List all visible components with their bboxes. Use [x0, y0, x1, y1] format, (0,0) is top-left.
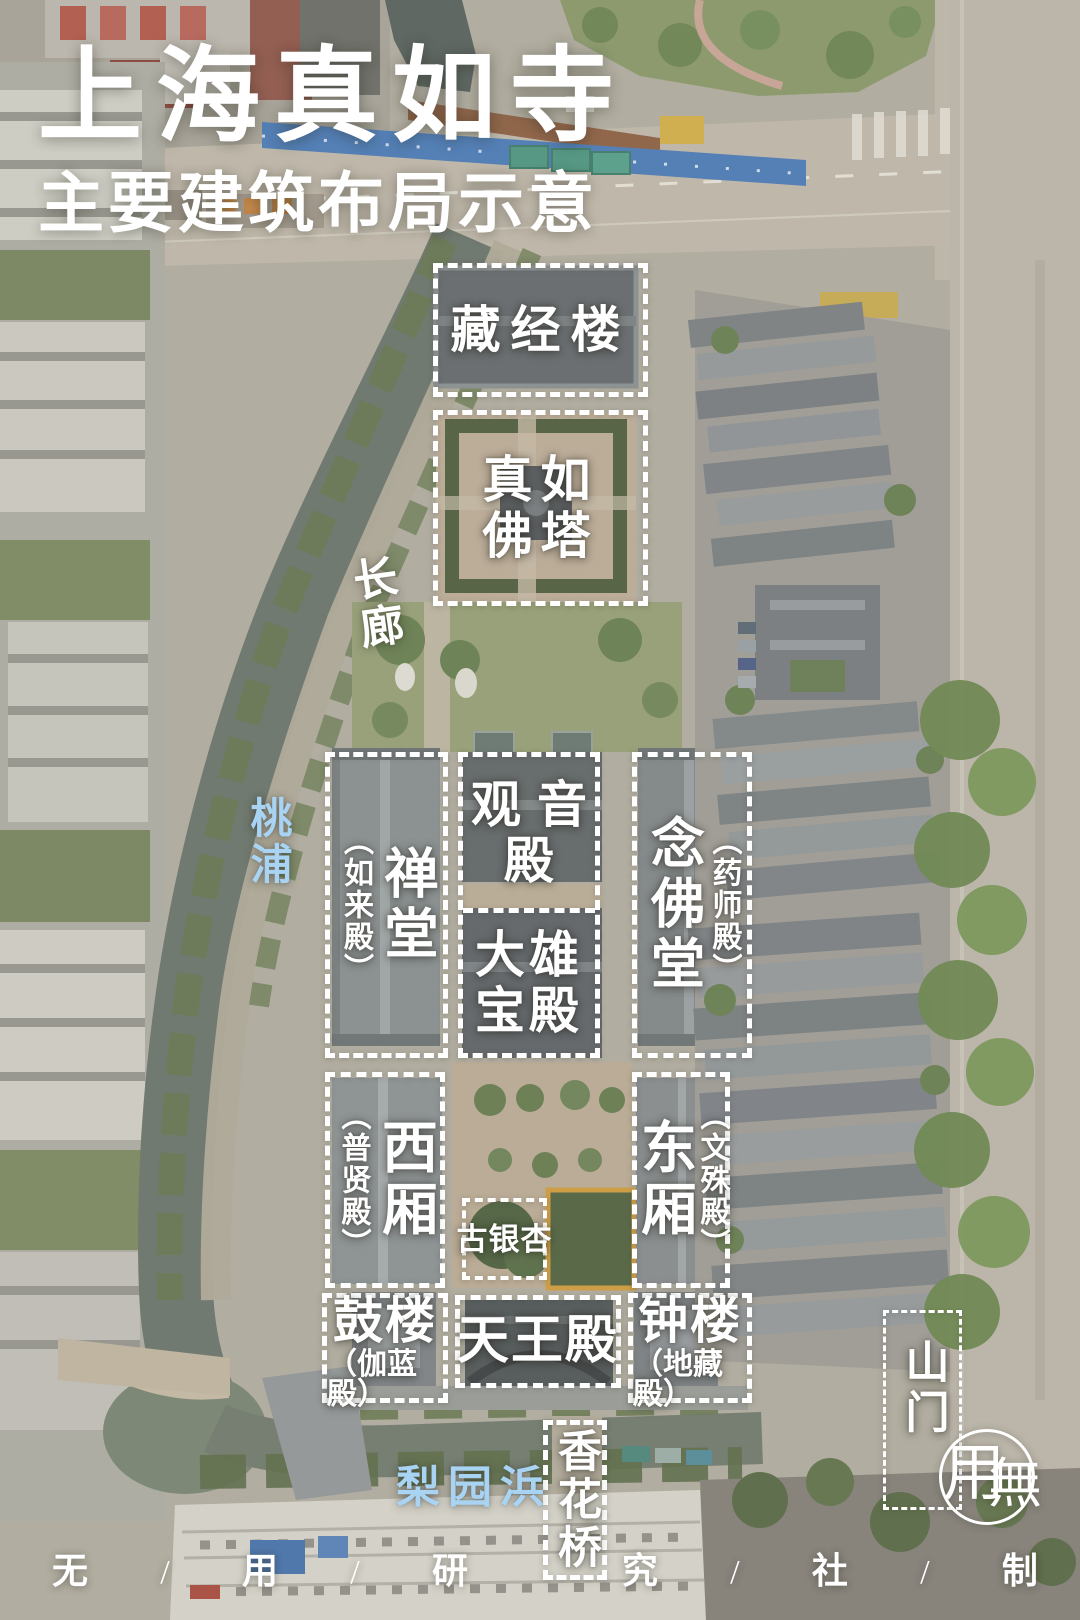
box-west-wing: （普贤殿） 西厢	[325, 1072, 445, 1288]
box-tianwang-hall: 天王殿	[455, 1295, 621, 1388]
studio-seal-logo: 用 無	[939, 1429, 1035, 1525]
poster-subtitle: 主要建筑布局示意	[38, 172, 598, 238]
box-bell-tower: 钟楼 （地藏殿）	[628, 1293, 752, 1403]
bell-tower-label: 钟楼	[638, 1296, 742, 1346]
box-nianfo-hall: 念佛堂 （药师殿）	[632, 752, 752, 1058]
drum-tower-label: 鼓楼	[333, 1296, 437, 1346]
mountain-gate-label: 山门	[901, 1339, 945, 1439]
taopu-river-label: 桃浦	[246, 796, 288, 888]
east-wing-alt-label: （文殊殿）	[697, 1100, 727, 1260]
chan-hall-alt-label: （如来殿）	[340, 825, 370, 985]
guanyin-hall-label: 观音 殿	[471, 777, 587, 889]
credit-char: 社	[812, 1542, 848, 1594]
east-wing-label: 东厢	[636, 1118, 692, 1242]
west-wing-alt-label: （普贤殿）	[338, 1100, 368, 1260]
poster-title: 上海真如寺	[38, 46, 628, 150]
guanyin-hall-cell: 观音 殿	[463, 757, 595, 908]
tianwang-hall-label: 天王殿	[457, 1316, 619, 1368]
box-sutra-library: 藏经楼	[433, 263, 648, 397]
mahavira-hall-cell: 大雄 宝殿	[463, 908, 595, 1053]
mahavira-hall-label: 大雄 宝殿	[475, 927, 583, 1039]
ginkgo-label: 古银杏	[457, 1224, 553, 1255]
poster-canvas: 上海真如寺 主要建筑布局示意 藏经楼 真如 佛塔 （如来殿） 禅堂 观音 殿 大…	[0, 0, 1080, 1620]
credit-char: 用	[242, 1542, 278, 1594]
nianfo-hall-labels: 念佛堂 （药师殿）	[646, 815, 739, 995]
credit-char: 无	[52, 1542, 88, 1594]
sutra-library-label: 藏经楼	[451, 305, 631, 355]
chan-hall-label: 禅堂	[379, 845, 433, 965]
west-wing-labels: （普贤殿） 西厢	[338, 1100, 433, 1260]
credit-slash: /	[350, 1554, 359, 1592]
drum-tower-alt-label: （伽蓝殿）	[327, 1350, 443, 1410]
box-pagoda: 真如 佛塔	[433, 410, 648, 606]
credit-row: 无 / 用 / 研 / 究 / 社 / 制	[52, 1542, 1038, 1594]
box-drum-tower: 鼓楼 （伽蓝殿）	[322, 1293, 448, 1403]
west-wing-label: 西厢	[377, 1118, 433, 1242]
chan-hall-labels: （如来殿） 禅堂	[340, 825, 433, 985]
box-ginkgo: 古银杏	[462, 1198, 547, 1280]
bell-tower-alt-label: （地藏殿）	[633, 1350, 747, 1410]
credit-char: 制	[1002, 1542, 1038, 1594]
credit-slash: /	[920, 1554, 929, 1592]
nianfo-hall-alt-label: （药师殿）	[709, 825, 739, 985]
corridor-label: 长廊	[346, 553, 403, 654]
box-chan-hall: （如来殿） 禅堂	[325, 752, 448, 1058]
credit-slash: /	[160, 1554, 169, 1592]
credit-slash: /	[730, 1554, 739, 1592]
pagoda-label: 真如 佛塔	[483, 452, 599, 564]
box-east-wing: 东厢 （文殊殿）	[632, 1072, 730, 1288]
logo-char-right: 無	[988, 1457, 1042, 1511]
liyuan-creek-label: 梨园浜	[396, 1466, 552, 1510]
box-central-halls: 观音 殿 大雄 宝殿	[458, 752, 600, 1058]
credit-char: 究	[622, 1542, 658, 1594]
nianfo-hall-label: 念佛堂	[646, 815, 700, 995]
credit-char: 研	[432, 1542, 468, 1594]
east-wing-labels: 东厢 （文殊殿）	[636, 1100, 727, 1260]
